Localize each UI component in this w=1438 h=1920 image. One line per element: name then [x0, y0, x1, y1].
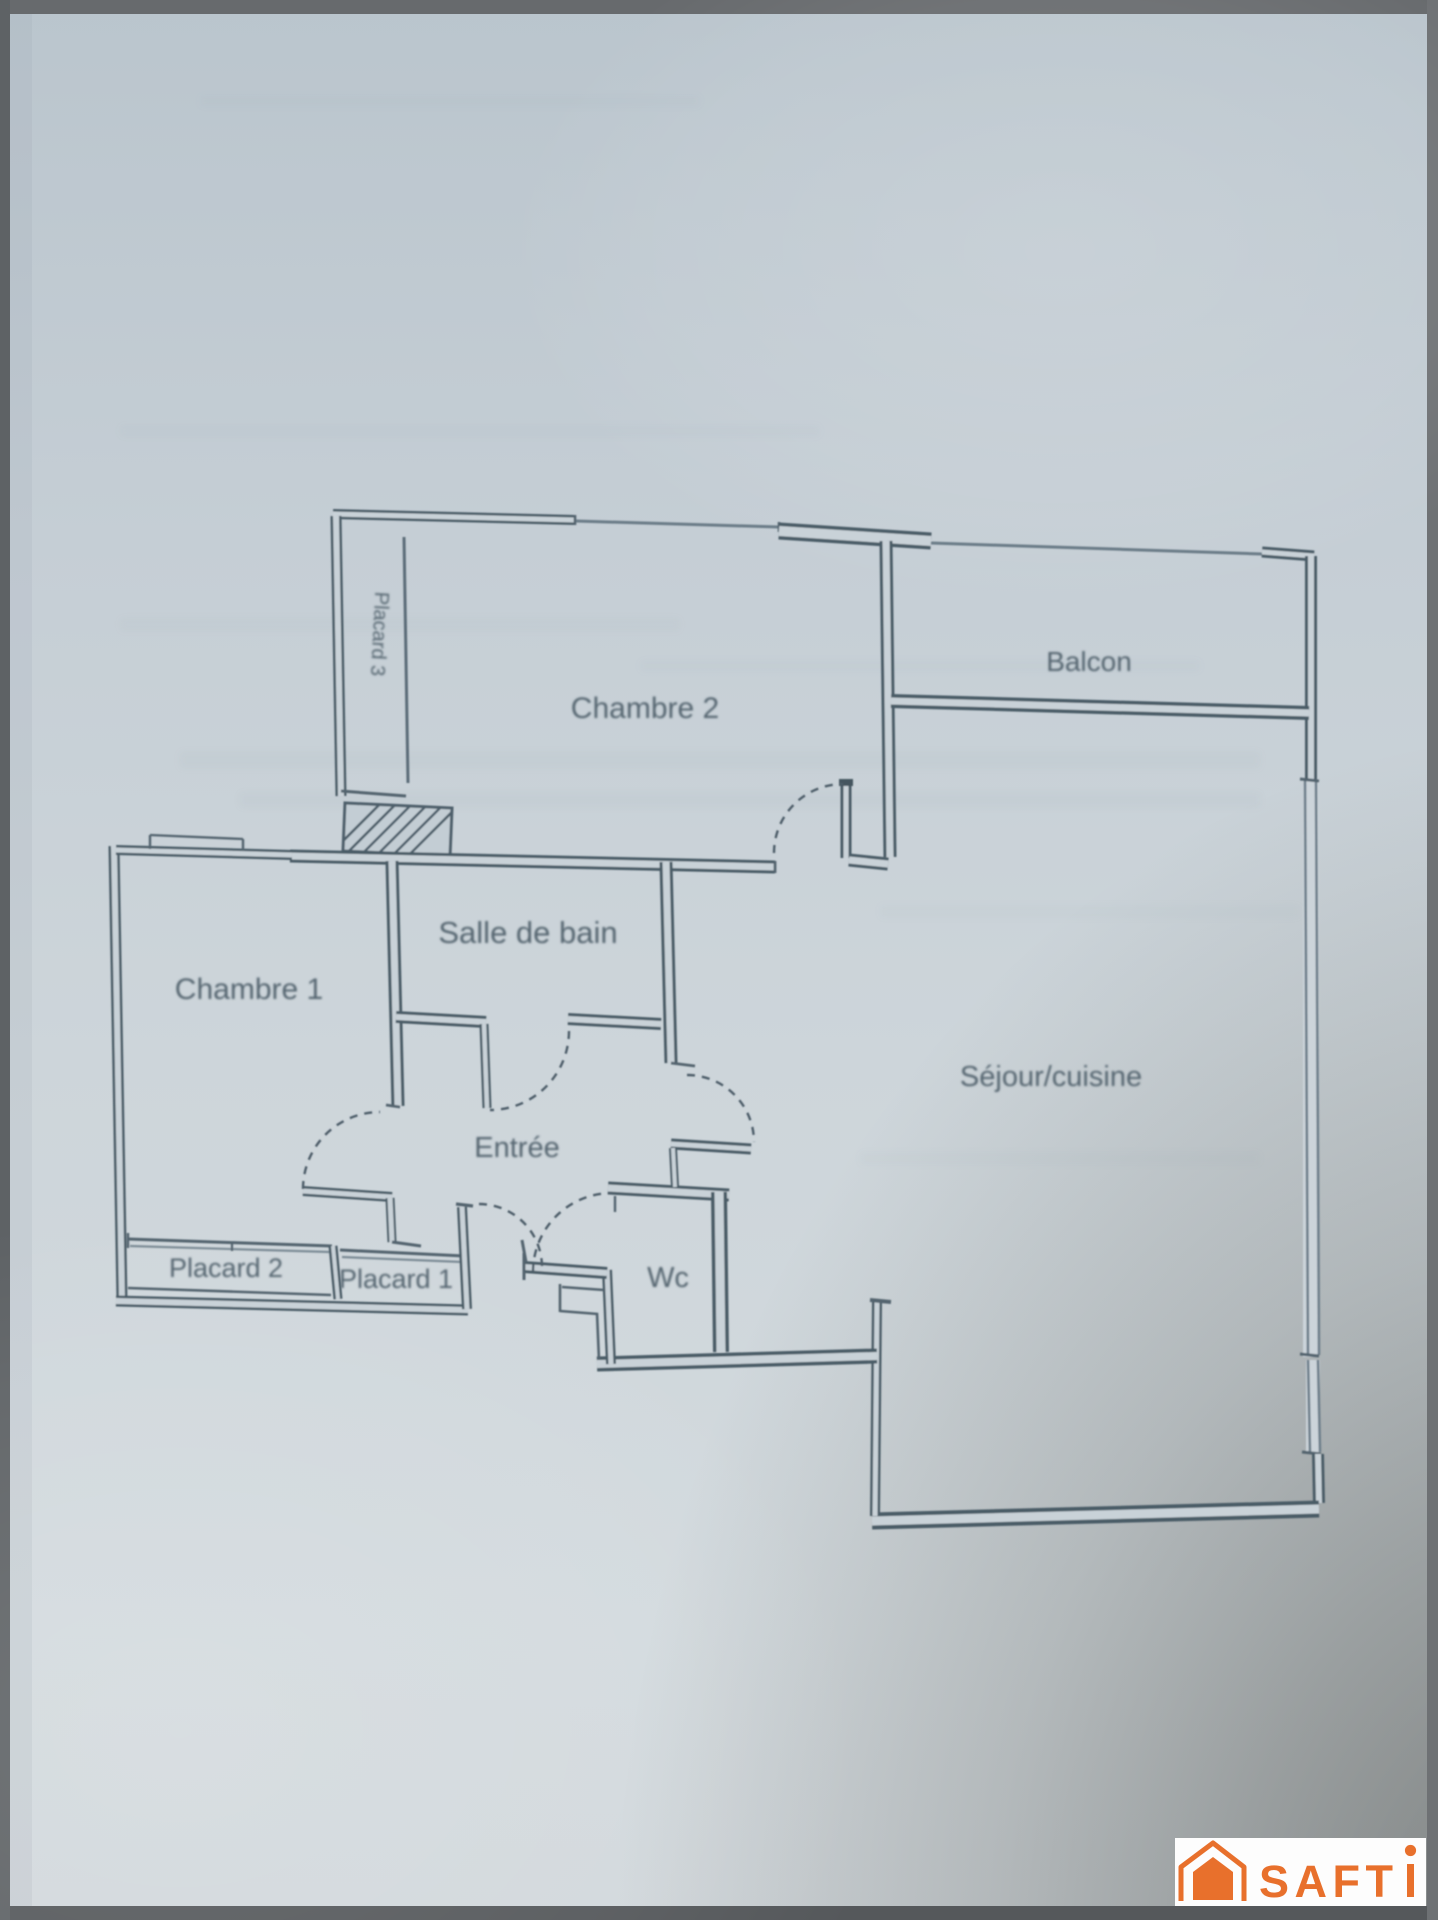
svg-text:Placard 1: Placard 1: [339, 1264, 453, 1294]
svg-text:Salle de bain: Salle de bain: [438, 915, 617, 950]
svg-text:Chambre 1: Chambre 1: [175, 973, 323, 1006]
svg-text:Balcon: Balcon: [1046, 646, 1132, 677]
svg-text:Séjour/cuisine: Séjour/cuisine: [960, 1061, 1142, 1093]
svg-text:Wc: Wc: [647, 1262, 689, 1294]
svg-text:Entrée: Entrée: [474, 1132, 559, 1164]
svg-text:Placard 3: Placard 3: [366, 591, 392, 677]
svg-text:Placard 2: Placard 2: [169, 1253, 283, 1283]
svg-text:SAFT: SAFT: [1259, 1856, 1399, 1907]
svg-text:Chambre 2: Chambre 2: [571, 692, 719, 725]
